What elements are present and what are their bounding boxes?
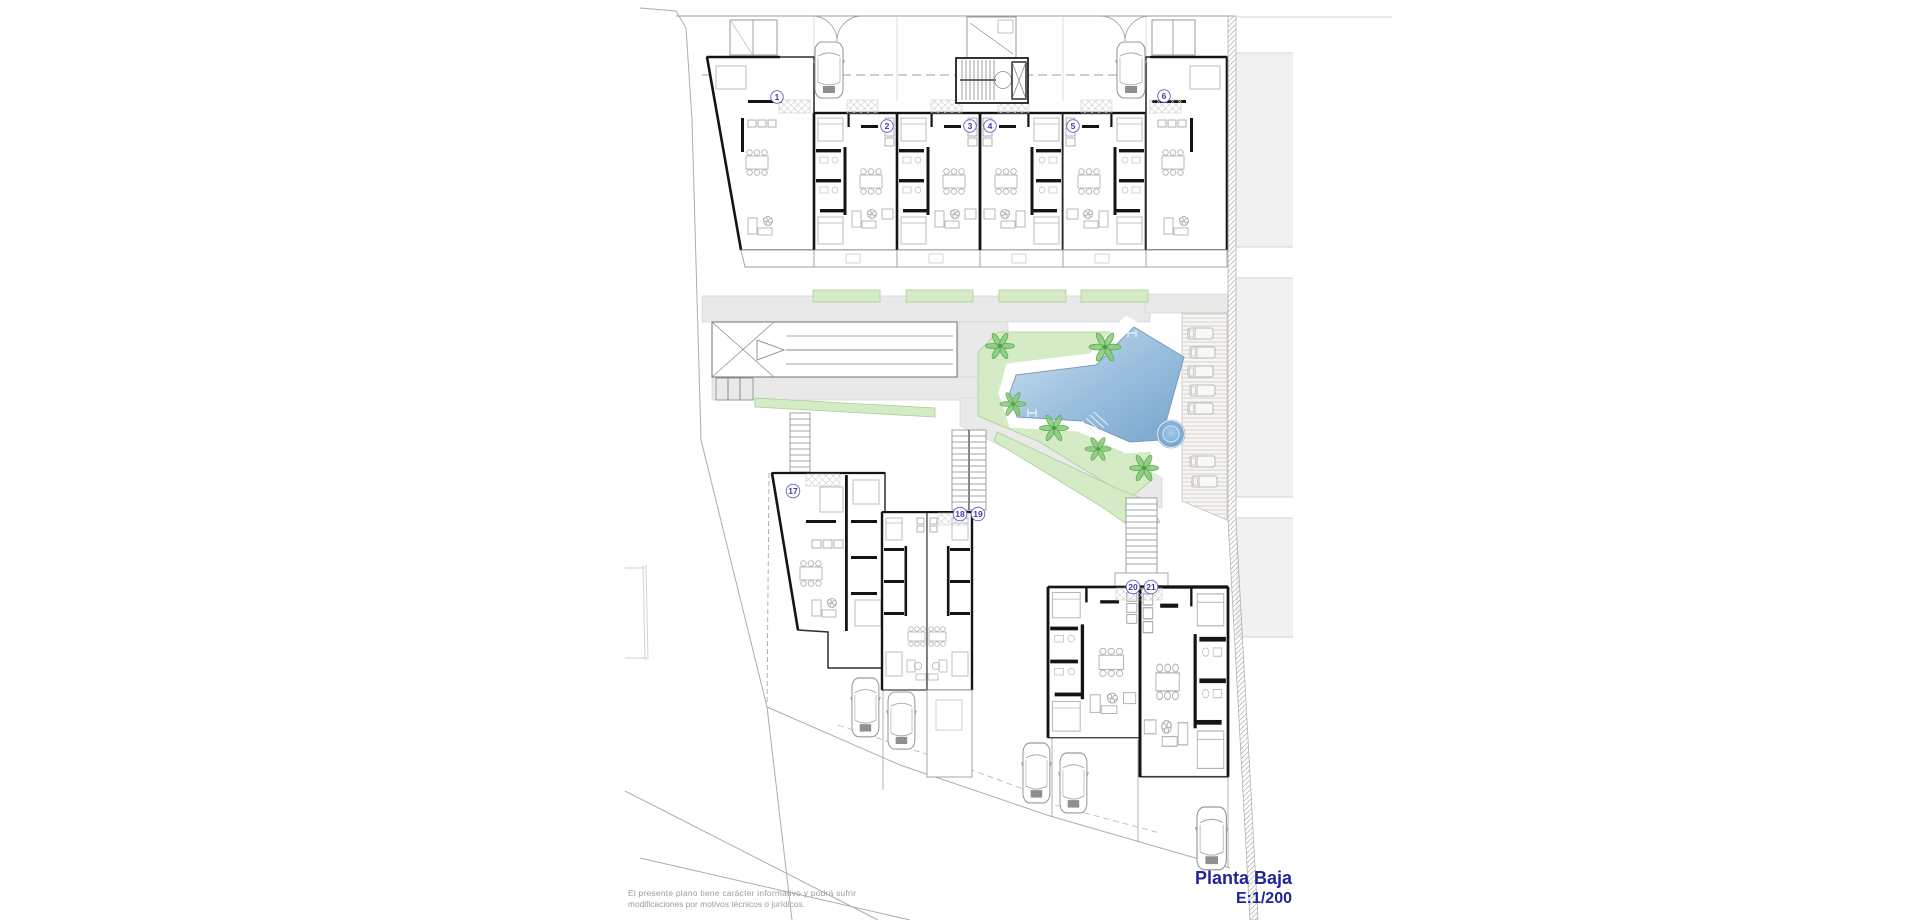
- unit-21-house: [1140, 585, 1229, 776]
- floor-title: Planta Baja: [1195, 868, 1293, 888]
- car-icon: [1195, 807, 1228, 870]
- unit-19-house: [927, 511, 973, 777]
- unit-badge: 2: [881, 120, 894, 133]
- svg-text:3: 3: [968, 121, 973, 131]
- svg-text:El presente plano tiene caráct: El presente plano tiene carácter informa…: [628, 888, 856, 898]
- car-icon: [887, 692, 917, 749]
- svg-text:20: 20: [1128, 582, 1138, 592]
- green-strip: [1081, 290, 1148, 302]
- car-icon: [851, 678, 881, 737]
- circular-spa: [1157, 420, 1185, 448]
- svg-text:17: 17: [788, 486, 798, 496]
- unit-2-house: [813, 112, 897, 267]
- unit-5-house: [1063, 112, 1147, 267]
- unit-6-end-house: [1146, 57, 1227, 267]
- unit-badge: 6: [1158, 90, 1171, 103]
- unit-18-house: [881, 511, 927, 690]
- scale-label: E:1/200: [1236, 890, 1292, 907]
- unit-20-house: [1047, 586, 1141, 738]
- sun-loungers: [1188, 328, 1217, 487]
- svg-text:modificaciones por motivos téc: modificaciones por motivos técnicos o ju…: [628, 899, 805, 909]
- car-icon: [1116, 42, 1147, 98]
- unit-badge: 17: [786, 484, 800, 498]
- elevator-icon: [1012, 62, 1026, 99]
- sun-deck: [1182, 313, 1227, 520]
- unit-badge: 4: [984, 120, 997, 133]
- unit-badge: 1: [771, 91, 784, 104]
- car-icon: [1022, 743, 1052, 803]
- svg-text:1: 1: [775, 92, 780, 102]
- unit-3-house: [896, 112, 980, 267]
- unit-badge: 19: [971, 507, 985, 521]
- unit-badge: 5: [1067, 120, 1080, 133]
- svg-text:2: 2: [885, 121, 890, 131]
- floor-plan-page: 1 2 3 4 5 6 17 18 19 20 21 Planta Baja E…: [0, 0, 1920, 920]
- svg-text:18: 18: [955, 509, 965, 519]
- unit-badge: 18: [953, 507, 967, 521]
- site-plan-drawing: 1 2 3 4 5 6 17 18 19 20 21 Planta Baja E…: [0, 0, 1920, 920]
- svg-text:5: 5: [1071, 121, 1076, 131]
- stair-a: [790, 413, 810, 472]
- svg-text:6: 6: [1162, 91, 1167, 101]
- car-icon: [814, 42, 845, 98]
- unit-badge: 21: [1144, 580, 1158, 594]
- stair-b: [952, 430, 986, 510]
- unit-badge: 20: [1126, 580, 1140, 594]
- green-strip: [906, 290, 973, 302]
- unit-badge: 3: [964, 120, 977, 133]
- svg-text:21: 21: [1146, 582, 1156, 592]
- green-strip: [999, 290, 1066, 302]
- svg-text:19: 19: [973, 509, 983, 519]
- unit-4-house: [980, 112, 1064, 267]
- car-icon: [1059, 753, 1089, 813]
- green-strip: [813, 290, 880, 302]
- svg-text:4: 4: [988, 121, 993, 131]
